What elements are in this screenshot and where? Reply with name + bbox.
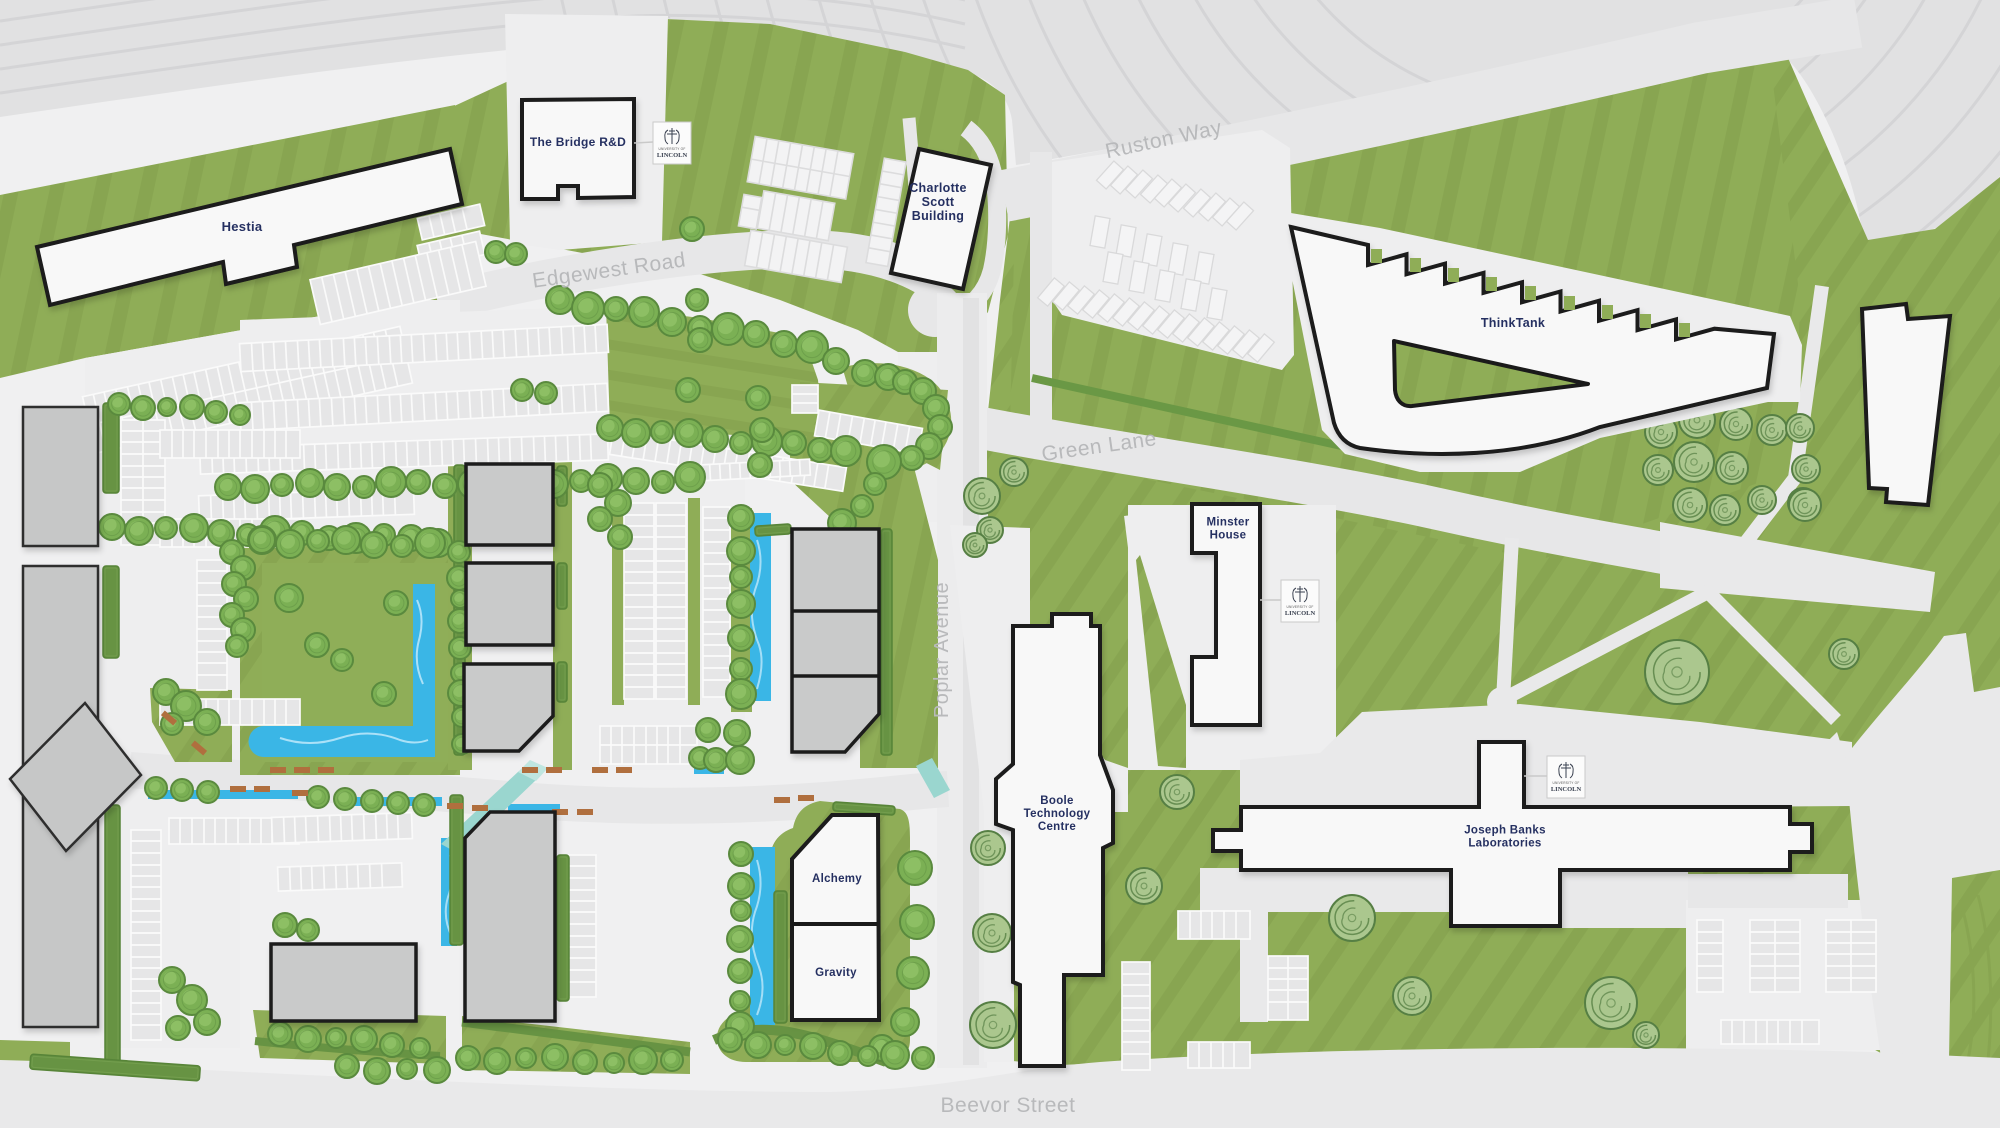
- svg-text:Poplar Avenue: Poplar Avenue: [931, 582, 953, 718]
- svg-text:Joseph BanksLaboratories: Joseph BanksLaboratories: [1464, 825, 1546, 850]
- svg-text:MinsterHouse: MinsterHouse: [1207, 517, 1250, 542]
- svg-text:ThinkTank: ThinkTank: [1481, 316, 1545, 330]
- svg-text:The Bridge R&D: The Bridge R&D: [530, 135, 626, 149]
- svg-text:Gravity: Gravity: [815, 967, 857, 979]
- svg-text:LINCOLN: LINCOLN: [1285, 610, 1316, 617]
- svg-text:UNIVERSITY OF: UNIVERSITY OF: [1553, 781, 1580, 785]
- svg-text:LINCOLN: LINCOLN: [1551, 786, 1582, 793]
- svg-text:Hestia: Hestia: [222, 219, 263, 234]
- svg-text:UNIVERSITY OF: UNIVERSITY OF: [659, 147, 686, 151]
- svg-text:LINCOLN: LINCOLN: [657, 152, 688, 159]
- svg-text:Beevor Street: Beevor Street: [941, 1094, 1076, 1117]
- svg-text:Alchemy: Alchemy: [812, 873, 862, 885]
- svg-text:UNIVERSITY OF: UNIVERSITY OF: [1287, 605, 1314, 609]
